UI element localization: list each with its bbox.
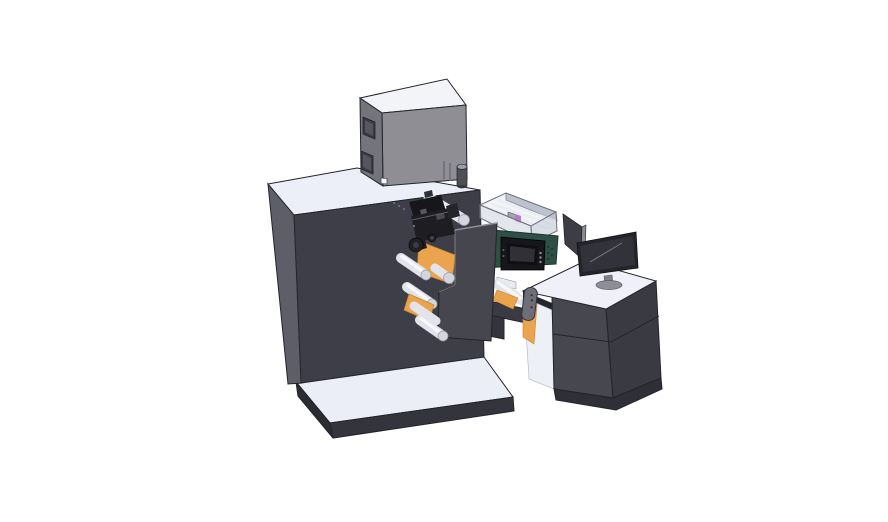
beacon-top [457,164,467,169]
operator-desk [523,261,662,410]
hmi-button [539,261,541,263]
housing-vent-hole [551,254,553,256]
housing-vent-hole [547,246,549,248]
cabinet-rivet-dot [398,205,400,207]
hmi-button [539,256,541,258]
mech-dot [413,225,415,227]
box-front-face [382,105,467,186]
cabinet-rivet-dot [393,202,395,204]
housing-vent-hole [551,248,553,250]
monitor-base [596,281,622,290]
roller-end-cap [444,273,455,284]
hmi-button [539,252,541,254]
housing-vent-hole [547,252,549,254]
desk-front-left-face [552,297,613,398]
roller-end-cap [421,270,431,280]
cad-render-stage [0,0,888,522]
beacon-body [457,167,467,186]
hmi-button [503,255,505,257]
hmi-panel [501,237,545,270]
electronics-box [360,79,467,186]
gear-small-hub [430,236,433,239]
housing-vent-hole [547,258,549,260]
cabinet-rivet-dot [403,208,405,210]
beacon-cylinder [457,164,467,188]
hmi-button [503,249,505,251]
cad-render-canvas [0,0,888,522]
box-corner-label [381,178,387,184]
gear-large-hub [413,242,419,248]
roller-end-cap [438,331,448,341]
roller-end-cap [459,215,470,226]
